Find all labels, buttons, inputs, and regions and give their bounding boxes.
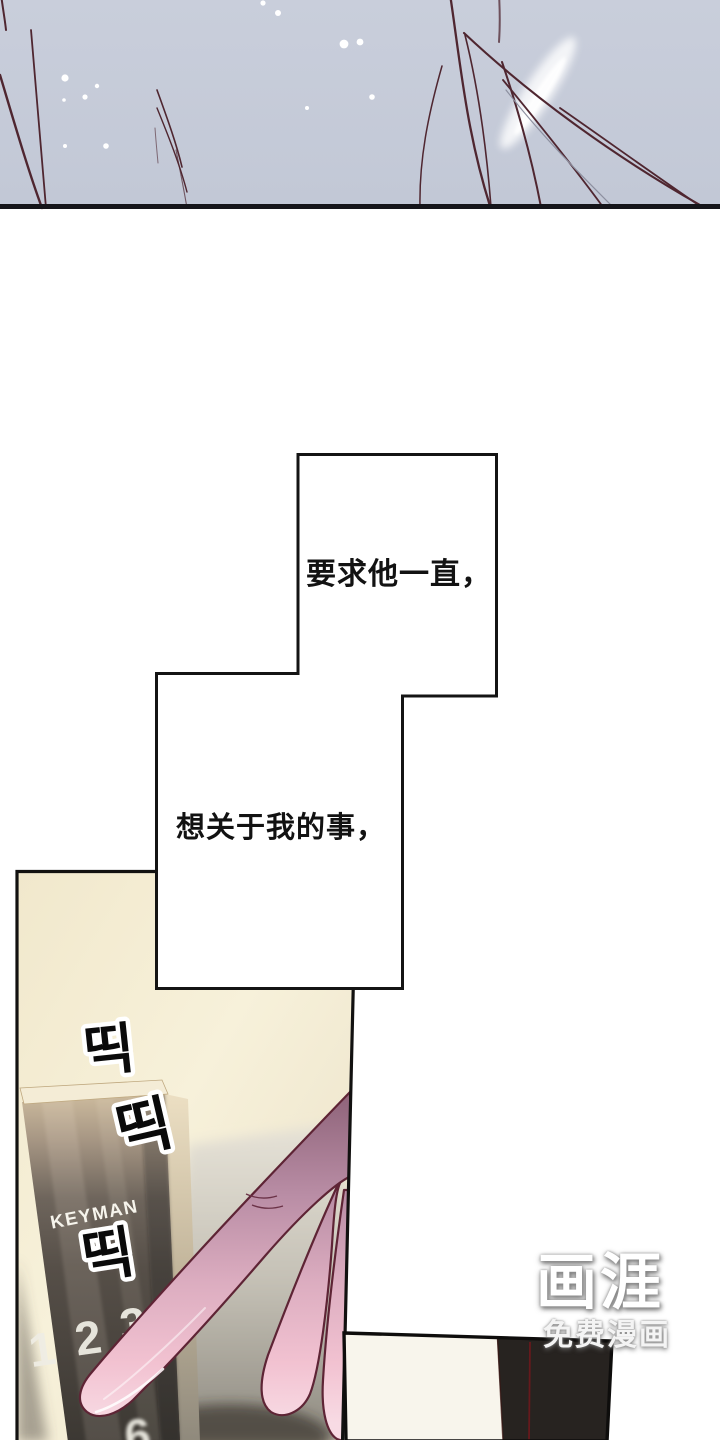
watermark-logo: 画涯: [536, 1252, 664, 1313]
top-panel-bottom-border: [0, 204, 720, 209]
speech-text-2: 想关于我的事，: [157, 812, 405, 845]
top-panel-background: [0, 0, 720, 207]
speech-bubble: [140, 440, 515, 1005]
comic-page: KEYMAN 1 2 3 6: [0, 0, 720, 1440]
top-hair-panel: [0, 0, 720, 212]
bottom-panel-dark-area: [497, 1338, 612, 1440]
sfx-click-1: 띡: [81, 1017, 138, 1084]
speech-bubble-shape: [157, 455, 497, 989]
watermark-tagline: 免费漫画: [543, 1321, 671, 1351]
speech-text-1: 要求他一直，: [299, 558, 499, 593]
sfx-click-3: 띡: [78, 1220, 139, 1290]
panel-red-line: [529, 1342, 530, 1440]
